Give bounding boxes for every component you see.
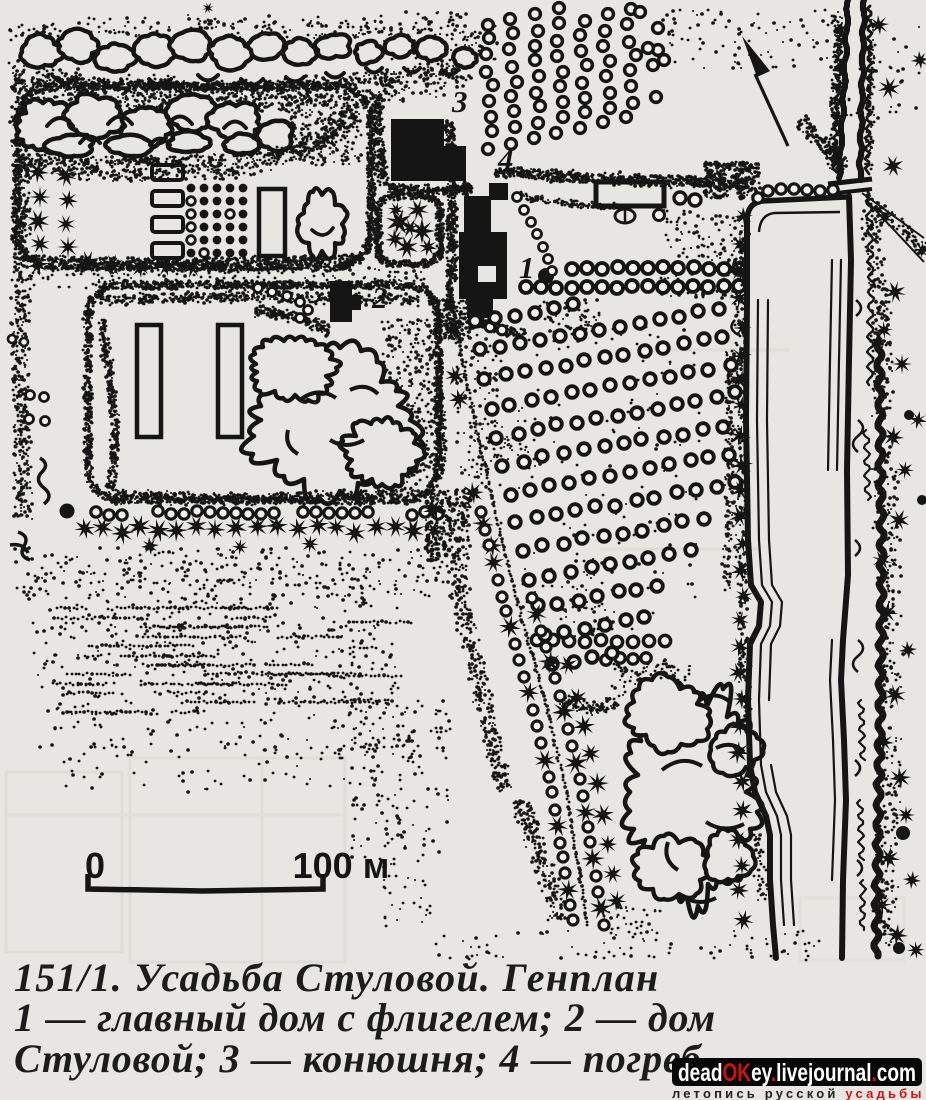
svg-text:100 м: 100 м [293,845,390,886]
svg-text:Стуловой; 3 — конюшня; 4 — пог: Стуловой; 3 — конюшня; 4 — погреб [14,1036,703,1081]
svg-text:151/1. Усадьба Стуловой. Генпл: 151/1. Усадьба Стуловой. Генплан [14,955,660,1000]
svg-text:3: 3 [451,84,468,119]
svg-text:4: 4 [497,142,514,177]
svg-text:2: 2 [371,280,388,315]
svg-text:1 — главный дом с флигелем; 2: 1 — главный дом с флигелем; 2 — дом [14,995,716,1040]
svg-text:1: 1 [519,250,535,285]
svg-text:летопись русской усадьбы: летопись русской усадьбы [672,1086,925,1100]
svg-text:0: 0 [85,845,105,886]
svg-text:deadOKey.livejournal.com: deadOKey.livejournal.com [678,1059,916,1087]
